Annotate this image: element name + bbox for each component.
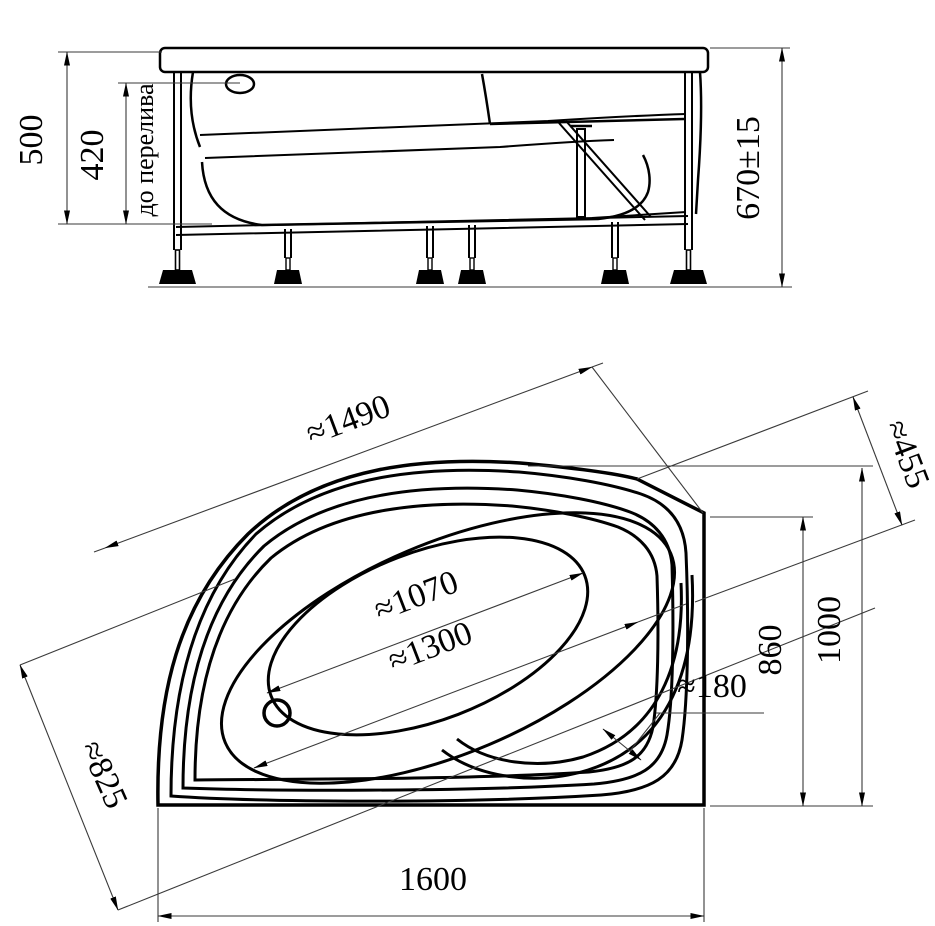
dim-860-label: 860 [752, 625, 789, 676]
dim-1000-label: 1000 [811, 596, 848, 664]
overflow-note-label: до перелива [130, 83, 159, 217]
dim-500-label: 500 [13, 115, 50, 166]
dim-1490-label: ≈1490 [301, 388, 395, 453]
dim-1300-label: ≈1300 [383, 614, 477, 680]
technical-drawing: 500 420 до перелива 670±15 [0, 0, 935, 926]
dim-670-label: 670±15 [730, 116, 767, 220]
frame-foot [670, 270, 707, 284]
support-frame [159, 72, 707, 284]
tub-rim-profile [160, 48, 708, 72]
frame-foot [159, 270, 196, 284]
dim-825-label: ≈825 [73, 735, 135, 814]
side-view: 500 420 до перелива 670±15 [13, 48, 792, 287]
overflow-hole-icon [226, 75, 254, 93]
tub-shell-profile [191, 72, 701, 225]
dim-180-label: ≈180 [677, 668, 747, 705]
plan-view: ≈1490 ≈455 ≈825 ≈1070 ≈1300 ≈180 860 100… [20, 363, 935, 922]
side-view-dimensions [58, 48, 790, 287]
drain-hole-icon [264, 700, 290, 726]
bathtub-technical-drawing-page: 500 420 до перелива 670±15 [0, 0, 935, 926]
dim-420-label: 420 [74, 130, 111, 181]
dim-1600-label: 1600 [399, 861, 467, 898]
